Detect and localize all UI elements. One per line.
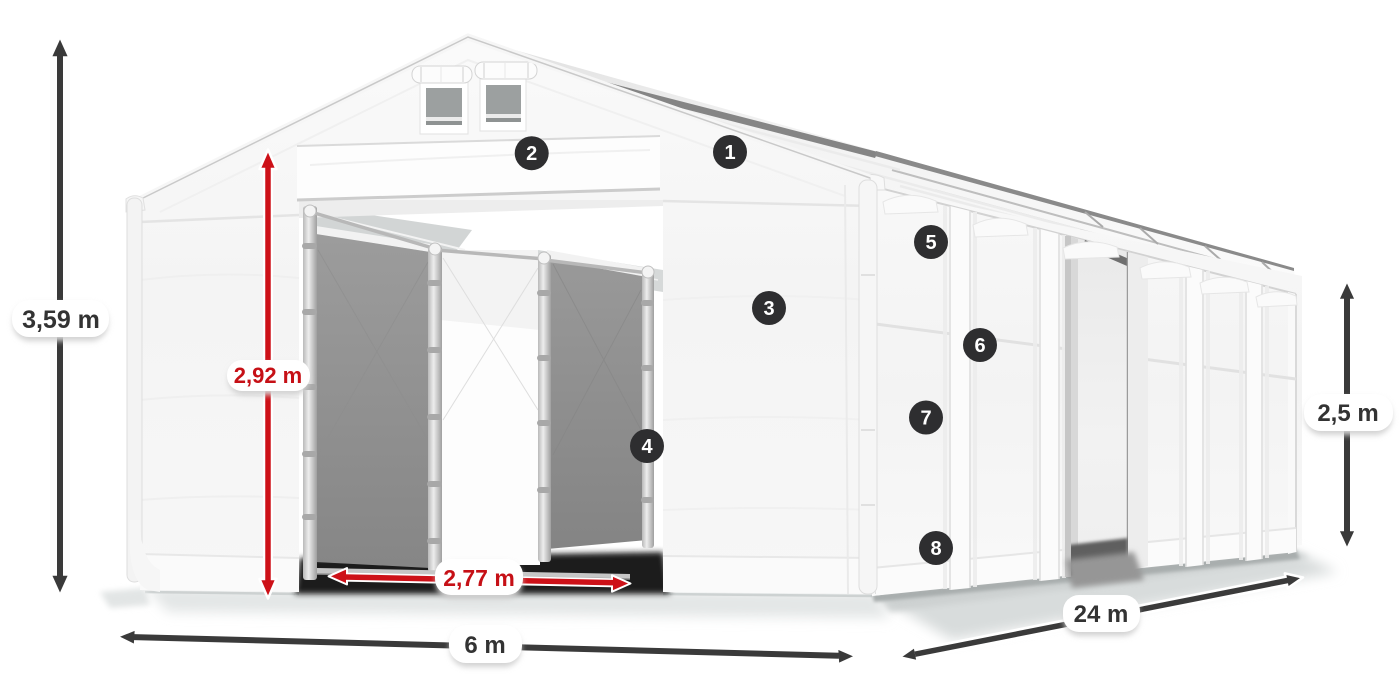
- svg-text:6: 6: [974, 335, 985, 357]
- svg-text:2,92 m: 2,92 m: [234, 363, 303, 388]
- svg-text:8: 8: [930, 538, 941, 560]
- svg-text:6 m: 6 m: [464, 632, 505, 659]
- svg-text:2,77 m: 2,77 m: [443, 565, 515, 591]
- svg-text:3,59 m: 3,59 m: [22, 306, 100, 334]
- svg-text:7: 7: [920, 408, 931, 430]
- svg-text:5: 5: [925, 232, 936, 254]
- svg-text:4: 4: [641, 436, 653, 458]
- svg-text:1: 1: [724, 142, 735, 164]
- svg-text:3: 3: [763, 298, 774, 320]
- svg-text:2: 2: [526, 143, 537, 165]
- svg-text:24 m: 24 m: [1074, 601, 1129, 628]
- svg-text:2,5 m: 2,5 m: [1317, 400, 1378, 427]
